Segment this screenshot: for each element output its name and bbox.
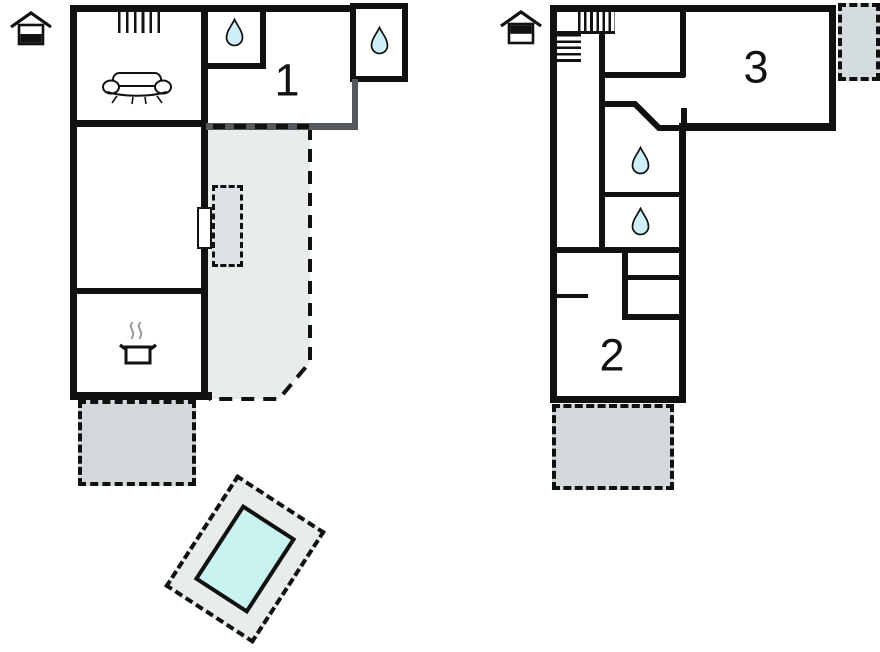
- room-1-label: 1: [274, 58, 299, 103]
- veranda-dashed-edge: [213, 124, 311, 129]
- wall: [70, 120, 208, 127]
- water-drop-icon: [630, 207, 651, 244]
- pool: [164, 474, 326, 644]
- door: [197, 207, 212, 249]
- water-drop-icon: [224, 17, 245, 56]
- balcony: [838, 3, 880, 81]
- sofa-icon: [101, 70, 173, 111]
- wall: [681, 108, 687, 130]
- wall: [602, 192, 685, 197]
- wall: [600, 72, 685, 78]
- wall: [70, 5, 77, 400]
- wall: [680, 5, 686, 77]
- stairs-icon: [578, 12, 615, 31]
- wall-angled: [598, 100, 690, 139]
- stairs-icon: [557, 34, 581, 64]
- water-drop-icon: [369, 26, 390, 63]
- pool-water: [194, 504, 297, 614]
- wall: [70, 288, 208, 294]
- wall: [555, 294, 588, 298]
- wall: [201, 63, 266, 69]
- wall: [260, 5, 266, 69]
- wall: [622, 314, 685, 320]
- wall: [70, 5, 354, 12]
- entry-patch: [212, 185, 243, 267]
- wall: [626, 275, 685, 280]
- wall: [550, 5, 557, 403]
- floor-plan-canvas: 1: [0, 0, 880, 652]
- house-upper-level-icon: [499, 10, 543, 51]
- water-drop-icon: [630, 146, 651, 183]
- cooking-pot-icon: [113, 320, 163, 373]
- wall: [402, 3, 408, 82]
- terrace: [552, 404, 674, 490]
- wall: [552, 247, 685, 253]
- wall: [679, 123, 836, 131]
- wall: [622, 253, 628, 319]
- wall: [70, 392, 212, 400]
- room-3-label: 3: [743, 45, 768, 90]
- wall: [550, 396, 686, 403]
- wall: [679, 123, 686, 403]
- wall: [550, 5, 836, 12]
- wall: [350, 76, 408, 82]
- stairs-icon: [118, 12, 165, 33]
- room-2-label: 2: [599, 333, 624, 378]
- wall: [829, 5, 836, 131]
- wall: [599, 31, 605, 253]
- wall: [350, 3, 408, 9]
- wall: [350, 3, 356, 82]
- house-lower-level-icon: [9, 11, 53, 52]
- terrace: [78, 400, 196, 486]
